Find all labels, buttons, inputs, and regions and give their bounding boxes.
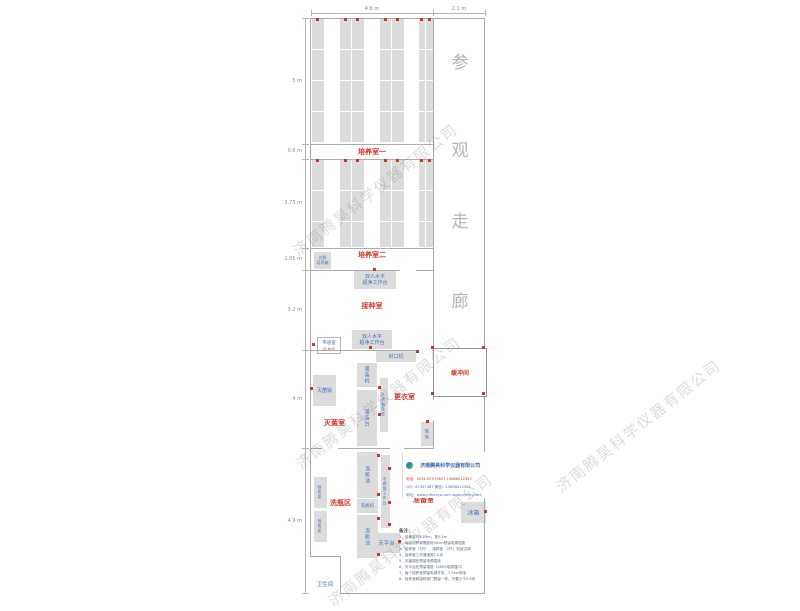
- room-label-toilet: 卫生间: [317, 580, 334, 588]
- marker-dot: [377, 553, 380, 556]
- company-info-block: 济南腾昊科学仪器有限公司 电话：0531-87919827 1586601235…: [402, 452, 486, 498]
- marker-dot: [356, 159, 359, 162]
- marker-dot: [420, 159, 423, 162]
- marker-dot: [384, 159, 387, 162]
- dimension-label-48m: 4.8 m: [352, 6, 392, 12]
- marker-dot: [378, 413, 381, 416]
- top-dimension-line: [311, 13, 486, 14]
- door-gap: [390, 447, 404, 450]
- note-item: 8、培养室和接种室门预留一样，不要小于0.9米: [399, 576, 481, 582]
- company-website: 网址：www.jnthkxyq.com www.cnthky.com: [406, 493, 486, 498]
- dimension-tick: [302, 593, 309, 594]
- marker-dot: [378, 386, 381, 389]
- company-logo-icon: [406, 462, 413, 469]
- marker-dot: [369, 346, 372, 349]
- dimension-tick: [433, 10, 434, 16]
- wall-line: [310, 159, 434, 160]
- floor-plan: 培养室一 培养室二 接种室 灭菌室 更衣室 洗瓶区 准备室 光照 培养箱 双人水…: [310, 18, 485, 594]
- corridor-char: 参: [449, 48, 471, 73]
- dimension-tick: [302, 18, 309, 19]
- dimension-tick: [302, 448, 309, 449]
- marker-dot: [310, 387, 313, 390]
- buffer-room: 缓冲间: [433, 348, 487, 397]
- dimension-label-105m: 1.05 m: [278, 256, 302, 262]
- dimension-tick: [302, 159, 309, 160]
- marker-dot: [484, 510, 487, 513]
- wall-line: [310, 248, 434, 249]
- dimension-tick: [302, 248, 309, 249]
- room-label-culture1: 培养室一: [310, 147, 434, 157]
- left-dimension-line: [305, 18, 306, 594]
- page: { "watermark": { "text": "济南腾昊科学仪器有限公司",…: [0, 0, 800, 600]
- wall-line: [310, 144, 434, 145]
- room-label-inoculation: 接种室: [310, 301, 434, 311]
- dimension-label-32m: 3.2 m: [278, 307, 302, 313]
- marker-dot: [396, 159, 399, 162]
- dimension-label-375m: 3.75 m: [278, 200, 302, 206]
- dimension-tick: [485, 10, 486, 16]
- dimension-tick: [302, 270, 309, 271]
- marker-dot: [377, 493, 380, 496]
- corridor-char: 走: [449, 207, 471, 232]
- marker-dot: [482, 392, 485, 395]
- toilet-room: 卫生间: [310, 556, 341, 594]
- marker-dot: [426, 420, 429, 423]
- dimension-tick: [311, 10, 312, 16]
- marker-dot: [377, 517, 380, 520]
- room-label-buffer: 缓冲间: [451, 368, 469, 377]
- marker-dot: [431, 346, 434, 349]
- door-gap: [418, 349, 432, 352]
- marker-dot: [344, 18, 347, 21]
- room-label-changing: 更衣室: [394, 392, 415, 402]
- corridor-char: 观: [449, 136, 471, 161]
- room-label-sterilization: 灭菌室: [324, 418, 345, 428]
- room-label-culture2: 培养室二: [310, 250, 434, 260]
- marker-dot: [398, 540, 401, 543]
- marker-dot: [312, 343, 315, 346]
- company-qq: QQ：87437487 微信：15866012352: [406, 485, 486, 490]
- marker-dot: [428, 18, 431, 21]
- door-gap: [432, 400, 435, 420]
- marker-dot: [396, 18, 399, 21]
- marker-dot: [428, 159, 431, 162]
- marker-dot: [388, 523, 391, 526]
- marker-dot: [344, 159, 347, 162]
- dimension-label-4m: 4 m: [278, 396, 302, 402]
- dimension-label-49m: 4.9 m: [278, 518, 302, 524]
- marker-dot: [356, 18, 359, 21]
- door-gap: [400, 269, 416, 272]
- watermark-text: 济南腾昊科学仪器有限公司: [552, 355, 726, 497]
- corridor-char: 廊: [449, 287, 471, 312]
- marker-dot: [416, 350, 419, 353]
- company-name: 济南腾昊科学仪器有限公司: [420, 462, 480, 469]
- marker-dot: [482, 346, 485, 349]
- company-phone: 电话：0531-87919827 15866012352: [406, 477, 486, 482]
- dimension-label-5m: 5 m: [278, 78, 302, 84]
- marker-dot: [373, 268, 376, 271]
- notes-block: 备注： 1、培养架长1.25m，宽0.5m 2、每组培养架需距地30cm预留电源…: [399, 528, 481, 582]
- dimension-label-21m: 2.1 m: [439, 6, 479, 12]
- marker-dot: [388, 501, 391, 504]
- marker-dot: [316, 159, 319, 162]
- room-label-washing-area: 洗瓶区: [330, 498, 351, 508]
- marker-dot: [420, 18, 423, 21]
- marker-dot: [377, 454, 380, 457]
- door-gap: [322, 447, 338, 450]
- marker-dot: [316, 18, 319, 21]
- marker-dot: [384, 18, 387, 21]
- dimension-tick: [302, 350, 309, 351]
- marker-dot: [431, 392, 434, 395]
- dimension-tick: [302, 144, 309, 145]
- dimension-label-06m: 0.6 m: [278, 148, 302, 154]
- marker-dot: [388, 467, 391, 470]
